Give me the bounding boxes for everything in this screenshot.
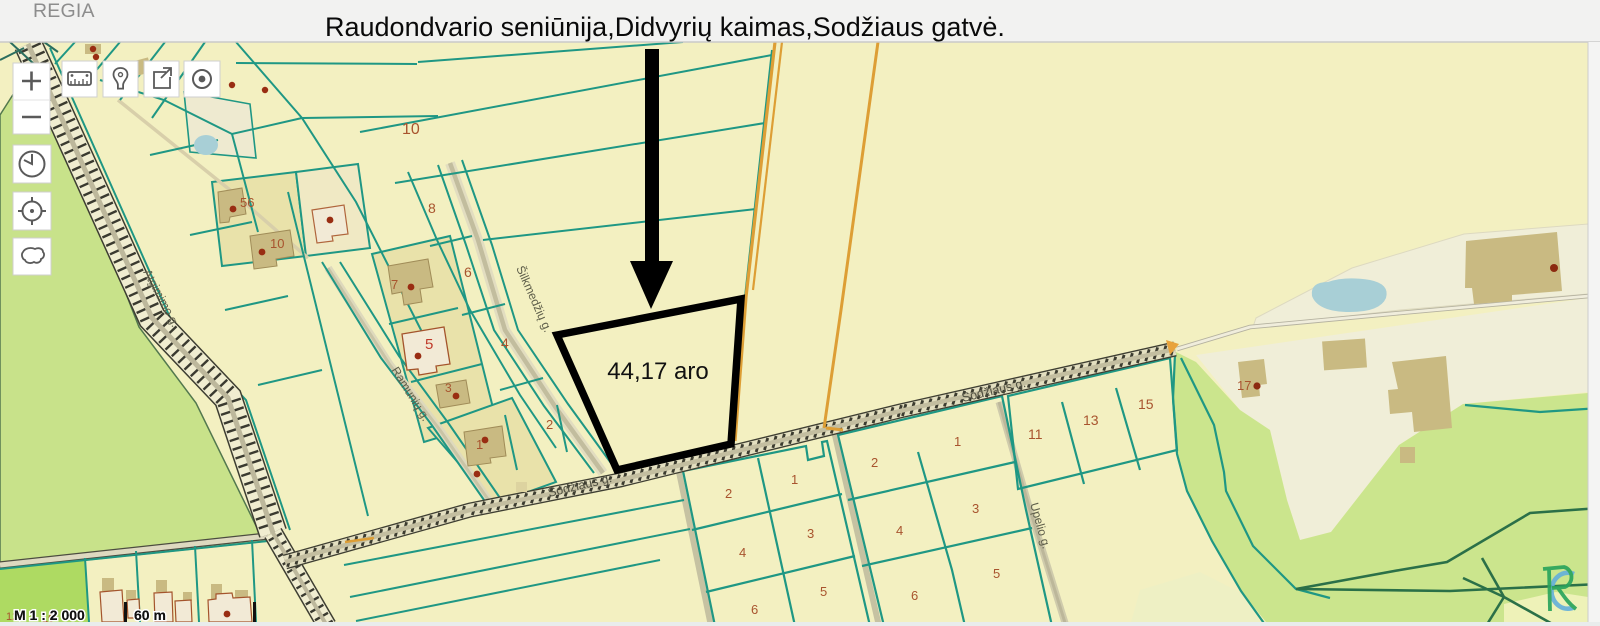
svg-text:3: 3 bbox=[807, 526, 814, 541]
svg-text:4: 4 bbox=[739, 545, 746, 560]
svg-text:2: 2 bbox=[546, 417, 553, 432]
svg-text:2: 2 bbox=[725, 486, 732, 501]
svg-text:4: 4 bbox=[501, 335, 509, 351]
svg-text:10: 10 bbox=[270, 236, 284, 251]
svg-text:17: 17 bbox=[1237, 378, 1251, 393]
svg-text:3: 3 bbox=[445, 381, 452, 395]
svg-text:11: 11 bbox=[1028, 426, 1043, 442]
svg-text:13: 13 bbox=[1083, 412, 1099, 428]
svg-text:3: 3 bbox=[972, 501, 979, 516]
svg-text:1: 1 bbox=[476, 437, 483, 452]
svg-text:6: 6 bbox=[911, 588, 918, 603]
svg-text:M 1 : 2 000: M 1 : 2 000 bbox=[14, 607, 85, 623]
svg-text:5: 5 bbox=[820, 584, 827, 599]
svg-text:15: 15 bbox=[1138, 396, 1154, 412]
svg-text:4: 4 bbox=[896, 523, 903, 538]
svg-text:2: 2 bbox=[871, 455, 878, 470]
svg-text:44,17 aro: 44,17 aro bbox=[607, 358, 708, 385]
svg-text:1: 1 bbox=[954, 434, 961, 449]
svg-text:5: 5 bbox=[993, 566, 1000, 581]
svg-text:5: 5 bbox=[425, 336, 433, 353]
svg-text:6: 6 bbox=[751, 602, 758, 617]
svg-text:6: 6 bbox=[464, 264, 472, 280]
svg-text:8: 8 bbox=[428, 200, 436, 216]
svg-text:10: 10 bbox=[402, 121, 420, 138]
svg-text:56: 56 bbox=[240, 195, 254, 210]
svg-text:60 m: 60 m bbox=[134, 607, 166, 623]
svg-text:REGIA: REGIA bbox=[33, 0, 95, 22]
svg-text:1: 1 bbox=[791, 472, 798, 487]
svg-text:7: 7 bbox=[391, 277, 398, 292]
svg-text:Raudondvario seniūnija,Didvyri: Raudondvario seniūnija,Didvyrių kaimas,S… bbox=[325, 12, 1005, 42]
